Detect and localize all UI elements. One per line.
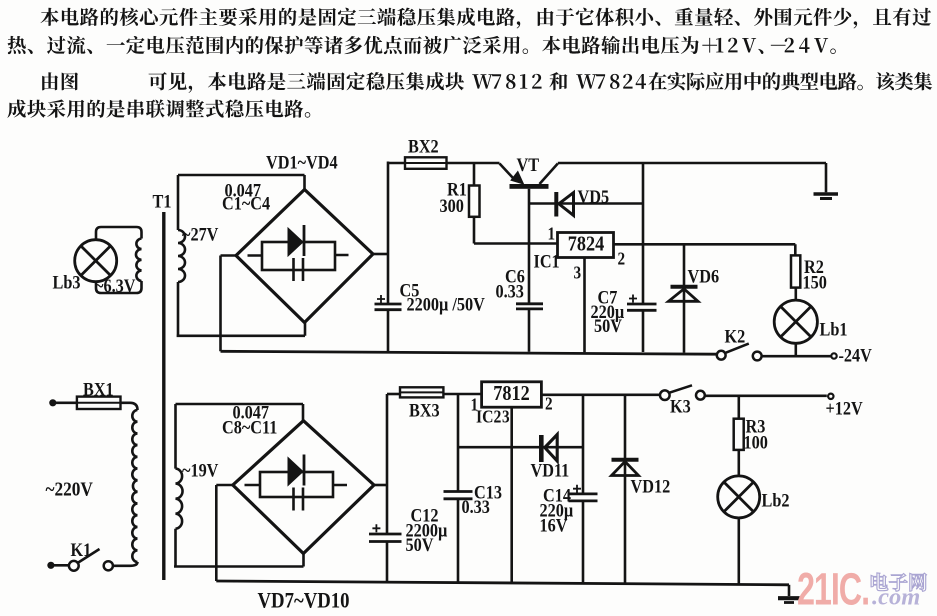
svg-text:~220V: ~220V	[46, 478, 94, 501]
svg-text:T1: T1	[153, 190, 172, 211]
svg-text:2: 2	[545, 393, 553, 413]
svg-text:~27V: ~27V	[182, 223, 219, 244]
svg-text:50V: 50V	[406, 534, 434, 555]
svg-text:~6.3V: ~6.3V	[95, 275, 136, 296]
svg-text:IC1: IC1	[534, 250, 560, 271]
svg-text:16V: 16V	[540, 514, 568, 535]
svg-text:7824: 7824	[568, 232, 605, 256]
svg-text:~19V: ~19V	[182, 459, 219, 480]
svg-text:+12V: +12V	[826, 397, 863, 418]
svg-text:VD5: VD5	[578, 186, 610, 207]
svg-text:VD6: VD6	[688, 265, 720, 286]
svg-text:50V: 50V	[594, 315, 622, 336]
svg-text:0.33: 0.33	[462, 496, 491, 517]
svg-text:-24V: -24V	[839, 344, 873, 365]
svg-text:VD1~VD4: VD1~VD4	[266, 151, 338, 172]
svg-text:3: 3	[502, 406, 510, 426]
svg-text:7812: 7812	[493, 382, 530, 406]
svg-text:VD11: VD11	[531, 459, 570, 480]
svg-text:K3: K3	[670, 395, 691, 416]
svg-text:VD7~VD10: VD7~VD10	[258, 589, 350, 613]
svg-text:IC2: IC2	[476, 406, 501, 426]
svg-text:C8~C11: C8~C11	[222, 416, 277, 437]
svg-text:BX3: BX3	[409, 399, 440, 420]
svg-text:VD12: VD12	[631, 475, 671, 496]
svg-text:BX2: BX2	[408, 135, 439, 156]
svg-text:VT: VT	[517, 154, 540, 175]
svg-text:Lb3: Lb3	[53, 271, 81, 292]
svg-text:0.33: 0.33	[496, 280, 525, 301]
svg-text:300: 300	[440, 195, 465, 216]
svg-text:150: 150	[803, 271, 828, 292]
svg-text:K2: K2	[725, 325, 746, 346]
svg-text:3: 3	[574, 262, 582, 282]
svg-text:C1~C4: C1~C4	[222, 192, 270, 213]
svg-text:BX1: BX1	[83, 378, 114, 399]
svg-text:K1: K1	[71, 539, 92, 560]
svg-text:1: 1	[548, 223, 556, 243]
svg-text:.com: .com	[872, 584, 920, 611]
svg-text:Lb2: Lb2	[762, 489, 790, 510]
svg-text:100: 100	[744, 431, 769, 452]
svg-text:2200µ /50V: 2200µ /50V	[407, 293, 486, 314]
svg-text:Lb1: Lb1	[820, 318, 848, 339]
svg-text:2: 2	[618, 248, 626, 268]
svg-text:21IC.: 21IC.	[797, 565, 869, 614]
